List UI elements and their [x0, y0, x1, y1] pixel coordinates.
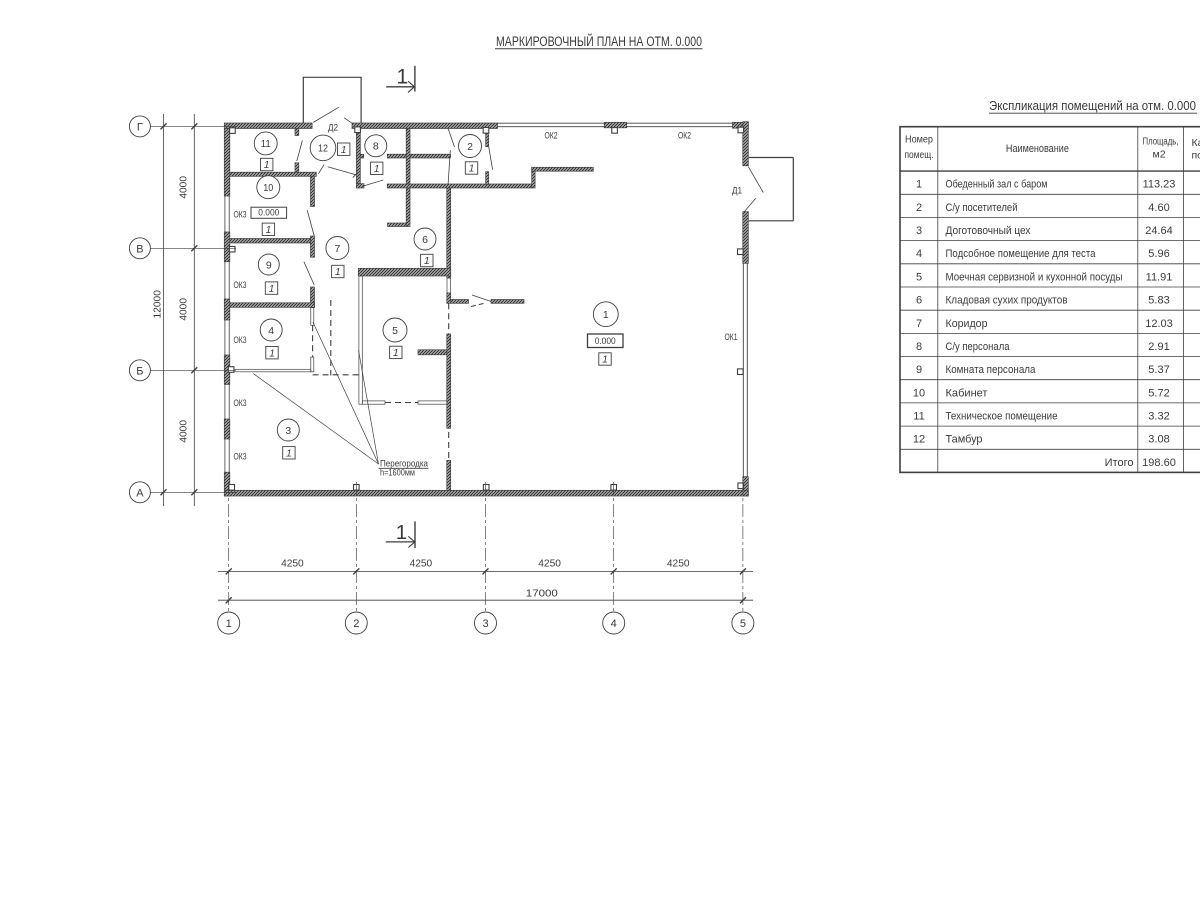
- svg-text:1: 1: [341, 145, 347, 156]
- svg-text:3: 3: [916, 225, 922, 237]
- svg-text:5: 5: [392, 325, 398, 337]
- svg-text:ОК3: ОК3: [234, 280, 247, 290]
- svg-text:3: 3: [285, 425, 291, 437]
- svg-text:8: 8: [916, 341, 922, 353]
- svg-text:Техническое помещение: Техническое помещение: [946, 411, 1058, 423]
- svg-text:4: 4: [611, 618, 617, 630]
- svg-text:3.32: 3.32: [1148, 411, 1169, 423]
- svg-text:МАРКИРОВОЧНЫЙ ПЛАН НА ОТМ. 0.0: МАРКИРОВОЧНЫЙ ПЛАН НА ОТМ. 0.000: [496, 34, 702, 49]
- svg-text:Коридор: Коридор: [946, 318, 988, 330]
- svg-text:4250: 4250: [667, 559, 690, 570]
- svg-text:3: 3: [482, 618, 488, 630]
- svg-text:С/у посетителей: С/у посетителей: [946, 202, 1018, 214]
- svg-text:по: по: [1192, 150, 1200, 162]
- svg-text:помещ.: помещ.: [905, 149, 934, 161]
- svg-text:1: 1: [424, 256, 430, 267]
- svg-text:1: 1: [603, 309, 609, 321]
- svg-text:1: 1: [396, 65, 408, 88]
- svg-text:1: 1: [269, 284, 275, 295]
- svg-text:Итого: Итого: [1105, 457, 1134, 469]
- svg-text:198.60: 198.60: [1142, 457, 1176, 469]
- svg-text:17000: 17000: [526, 589, 558, 600]
- svg-text:0.000: 0.000: [258, 208, 279, 218]
- svg-text:Кабинет: Кабинет: [946, 387, 988, 399]
- svg-text:Наименование: Наименование: [1006, 143, 1069, 155]
- svg-text:С/у персонала: С/у персонала: [946, 341, 1011, 353]
- svg-text:5.72: 5.72: [1148, 387, 1169, 399]
- svg-text:Моечная сервизной и кухонной п: Моечная сервизной и кухонной посуды: [946, 271, 1123, 283]
- svg-text:2.91: 2.91: [1148, 341, 1169, 353]
- svg-text:12: 12: [318, 143, 328, 155]
- svg-text:1: 1: [264, 160, 270, 171]
- svg-text:9: 9: [266, 259, 272, 271]
- svg-text:ОК3: ОК3: [234, 398, 247, 408]
- svg-text:1: 1: [602, 355, 608, 366]
- svg-text:1: 1: [266, 225, 272, 236]
- svg-text:10: 10: [263, 182, 273, 194]
- svg-text:Тамбур: Тамбур: [946, 434, 983, 446]
- svg-text:1: 1: [335, 267, 341, 278]
- svg-text:5.83: 5.83: [1148, 295, 1169, 307]
- svg-text:12.03: 12.03: [1145, 318, 1173, 330]
- svg-text:2: 2: [467, 141, 473, 153]
- svg-text:8: 8: [373, 141, 379, 153]
- svg-text:4250: 4250: [410, 559, 433, 570]
- svg-text:Обеденный зал с баром: Обеденный зал с баром: [946, 179, 1048, 191]
- svg-text:Д1: Д1: [732, 186, 742, 196]
- svg-text:Экспликация помещений на отм.: Экспликация помещений на отм. 0.000: [989, 99, 1196, 113]
- svg-text:11: 11: [913, 411, 924, 423]
- svg-text:м2: м2: [1152, 149, 1165, 161]
- svg-text:Подсобное помещение для теста: Подсобное помещение для теста: [946, 248, 1097, 260]
- svg-text:1: 1: [226, 618, 232, 630]
- svg-text:0.000: 0.000: [595, 336, 616, 346]
- svg-text:2: 2: [916, 202, 922, 214]
- svg-text:Ка: Ка: [1192, 137, 1200, 149]
- svg-text:6: 6: [916, 295, 922, 307]
- svg-text:1: 1: [393, 348, 399, 359]
- svg-text:4: 4: [916, 248, 922, 260]
- svg-text:h=1600мм: h=1600мм: [380, 468, 415, 478]
- svg-text:1: 1: [269, 348, 275, 359]
- svg-text:Д2: Д2: [328, 123, 338, 133]
- svg-text:Комната персонала: Комната персонала: [946, 364, 1037, 376]
- svg-text:4250: 4250: [538, 559, 561, 570]
- svg-text:Г: Г: [137, 121, 143, 133]
- svg-text:5.37: 5.37: [1148, 364, 1169, 376]
- svg-text:7: 7: [334, 243, 340, 255]
- svg-text:ОК2: ОК2: [545, 131, 558, 141]
- svg-text:2: 2: [353, 618, 359, 630]
- svg-text:5: 5: [740, 618, 746, 630]
- svg-text:5: 5: [916, 271, 922, 283]
- svg-text:1: 1: [374, 164, 380, 175]
- svg-text:11: 11: [261, 138, 271, 150]
- svg-text:Кладовая сухих продуктов: Кладовая сухих продуктов: [946, 295, 1068, 307]
- svg-text:ОК3: ОК3: [234, 452, 247, 462]
- svg-text:24.64: 24.64: [1145, 225, 1173, 237]
- svg-text:9: 9: [916, 364, 922, 376]
- svg-text:ОК3: ОК3: [234, 210, 247, 220]
- svg-text:А: А: [136, 487, 144, 499]
- svg-text:113.23: 113.23: [1143, 179, 1176, 191]
- svg-text:4000: 4000: [178, 298, 189, 321]
- svg-text:1: 1: [286, 449, 292, 460]
- svg-text:3.08: 3.08: [1148, 434, 1169, 446]
- svg-text:Номер: Номер: [905, 134, 933, 146]
- svg-text:1: 1: [396, 521, 407, 544]
- svg-text:5.96: 5.96: [1148, 248, 1169, 260]
- svg-text:ОК3: ОК3: [234, 335, 247, 345]
- svg-text:ОК1: ОК1: [725, 332, 738, 342]
- svg-text:4.60: 4.60: [1148, 202, 1169, 214]
- svg-text:ОК2: ОК2: [678, 131, 691, 141]
- svg-text:4250: 4250: [281, 559, 304, 570]
- svg-text:Б: Б: [136, 365, 143, 377]
- svg-text:Доготовочный цех: Доготовочный цех: [946, 225, 1031, 237]
- svg-text:Площадь,: Площадь,: [1143, 136, 1179, 148]
- svg-text:11.91: 11.91: [1146, 271, 1173, 283]
- svg-text:12: 12: [913, 434, 925, 446]
- svg-text:10: 10: [913, 387, 925, 399]
- svg-text:4: 4: [268, 325, 274, 337]
- svg-text:В: В: [136, 243, 143, 255]
- svg-text:7: 7: [916, 318, 922, 330]
- svg-text:4000: 4000: [178, 420, 189, 443]
- svg-text:12000: 12000: [152, 290, 163, 319]
- svg-text:1: 1: [469, 164, 475, 175]
- svg-text:6: 6: [422, 234, 428, 246]
- svg-text:4000: 4000: [178, 176, 189, 199]
- svg-text:1: 1: [916, 179, 922, 191]
